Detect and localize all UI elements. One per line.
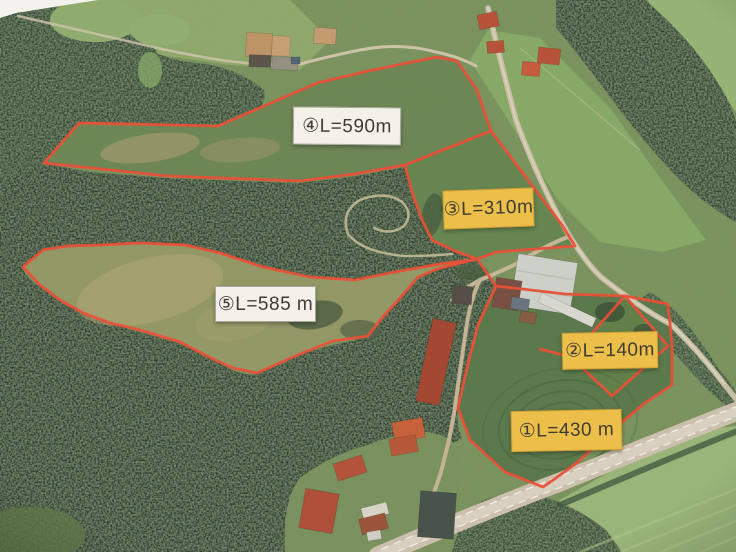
map-viewport: ④L=590m ③L=310m ⑤L=585 m ②L=140m ①L=430 …: [0, 0, 736, 552]
parcel-label-5: ⑤L=585 m: [215, 286, 316, 322]
aerial-photo: [0, 0, 736, 552]
parcel-label-2: ②L=140m: [562, 331, 659, 370]
parcel-label-3: ③L=310m: [442, 187, 534, 229]
vignette: [0, 0, 736, 552]
parcel-label-4: ④L=590m: [293, 107, 401, 146]
parcel-label-1: ①L=430 m: [511, 409, 623, 452]
